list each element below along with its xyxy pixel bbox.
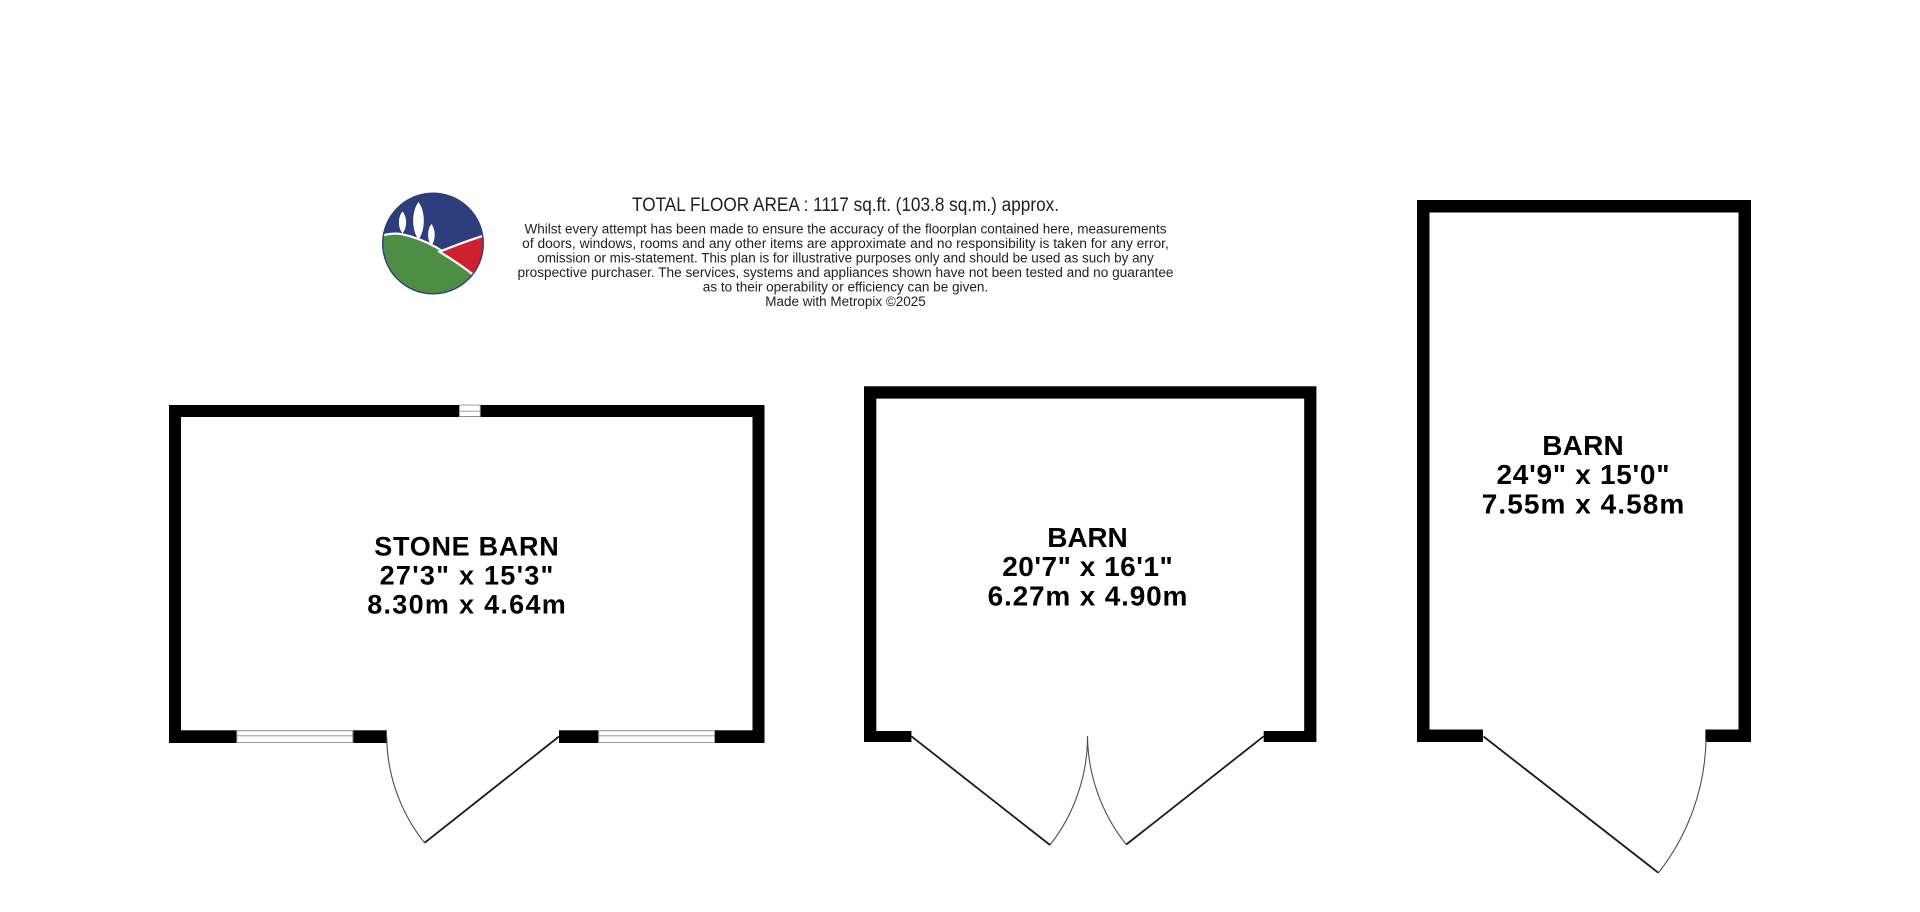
svg-text:as to their operability or eff: as to their operability or efficiency ca… <box>703 280 988 295</box>
svg-text:Made with Metropix ©2025: Made with Metropix ©2025 <box>765 294 926 309</box>
svg-text:24'9" x 15'0": 24'9" x 15'0" <box>1497 459 1670 490</box>
svg-text:8.30m x 4.64m: 8.30m x 4.64m <box>367 590 566 620</box>
svg-text:27'3" x 15'3": 27'3" x 15'3" <box>380 561 554 591</box>
svg-text:20'7" x 16'1": 20'7" x 16'1" <box>1002 551 1173 582</box>
svg-text:BARN: BARN <box>1047 522 1128 553</box>
svg-text:6.27m x 4.90m: 6.27m x 4.90m <box>988 581 1188 612</box>
svg-text:TOTAL FLOOR AREA : 1117 sq.ft.: TOTAL FLOOR AREA : 1117 sq.ft. (103.8 sq… <box>632 195 1059 216</box>
svg-text:STONE BARN: STONE BARN <box>374 532 559 562</box>
svg-text:of doors, windows, rooms and a: of doors, windows, rooms and any other i… <box>522 236 1169 251</box>
svg-text:Whilst every attempt has been: Whilst every attempt has been made to en… <box>525 222 1167 237</box>
svg-text:BARN: BARN <box>1542 430 1624 461</box>
svg-text:omission or mis-statement. Thi: omission or mis-statement. This plan is … <box>537 251 1154 266</box>
svg-text:prospective purchaser. The ser: prospective purchaser. The services, sys… <box>518 265 1174 280</box>
svg-text:7.55m x 4.58m: 7.55m x 4.58m <box>1482 488 1685 519</box>
